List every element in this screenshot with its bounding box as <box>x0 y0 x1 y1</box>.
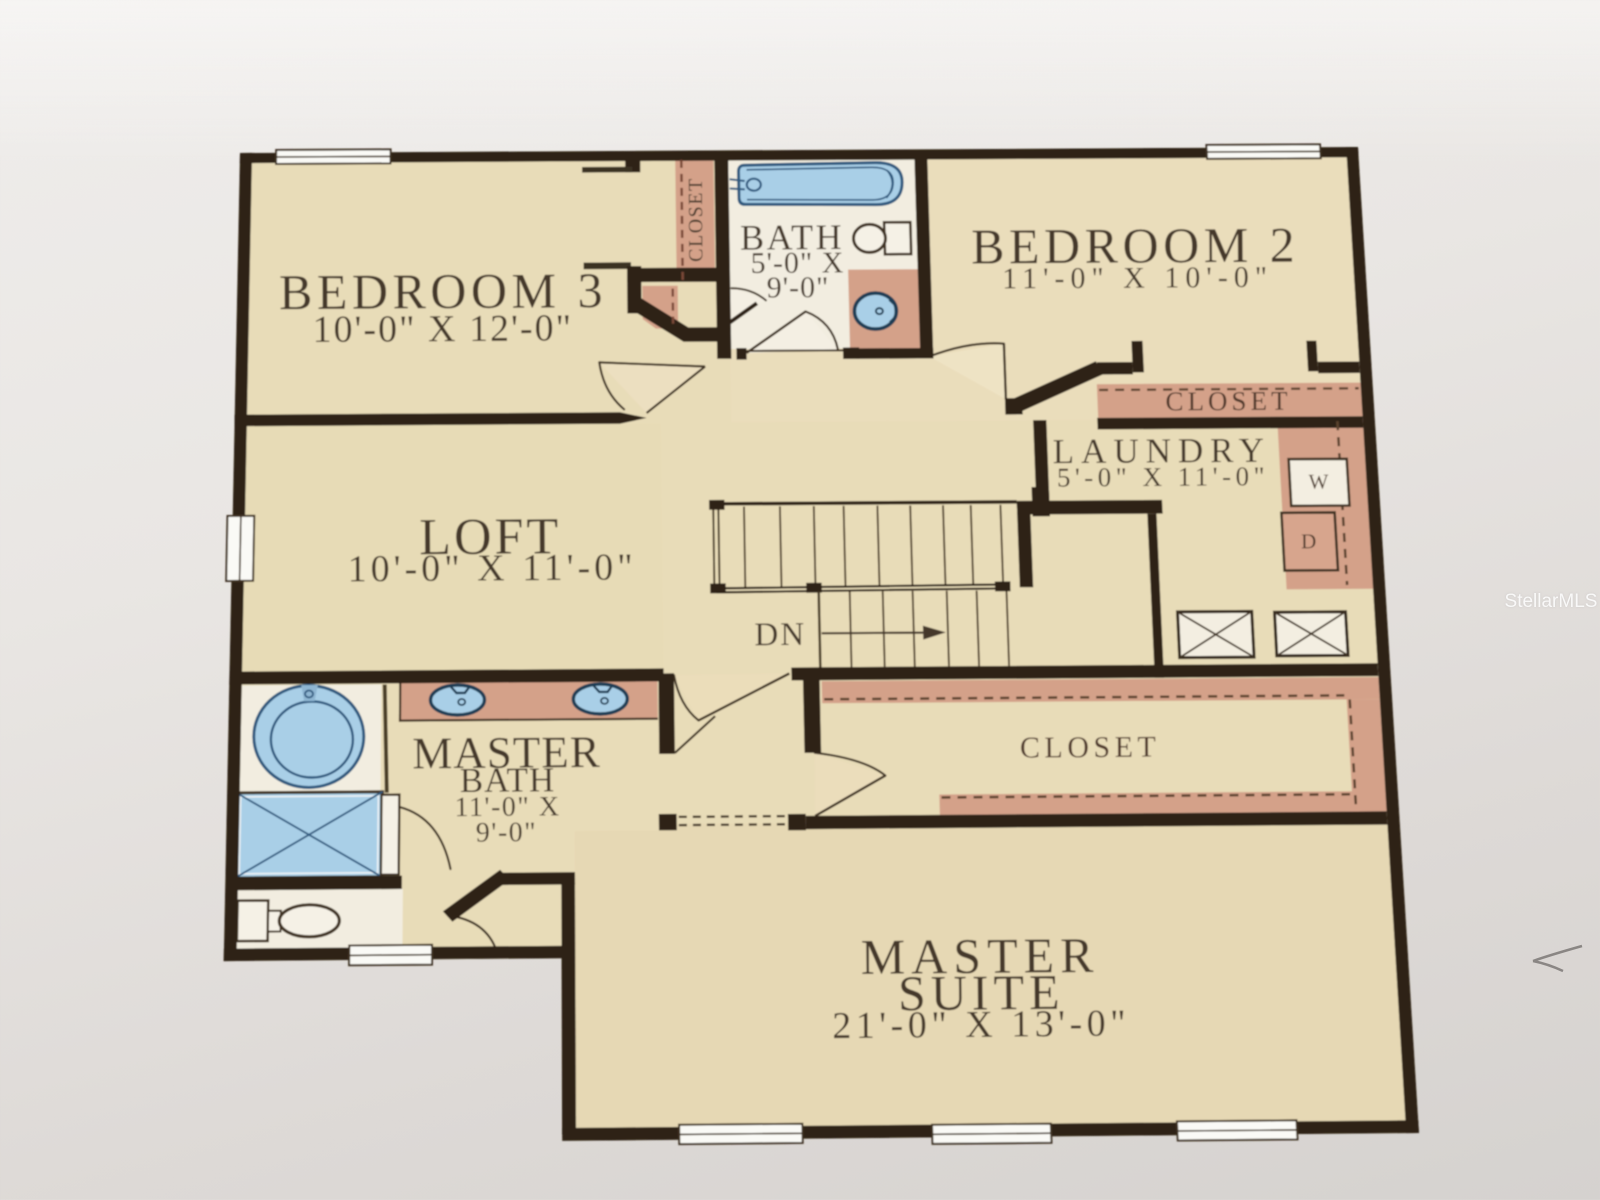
svg-text:10'-0" X 11'-0": 10'-0" X 11'-0" <box>348 546 637 590</box>
svg-text:CLOSET: CLOSET <box>685 177 707 262</box>
svg-text:StellarMLS: StellarMLS <box>1505 591 1598 612</box>
svg-text:11'-0" X 10'-0": 11'-0" X 10'-0" <box>1002 261 1273 296</box>
svg-text:CLOSET: CLOSET <box>1020 730 1161 764</box>
svg-text:10'-0" X 12'-0": 10'-0" X 12'-0" <box>312 307 573 351</box>
svg-text:21'-0" X 13'-0": 21'-0" X 13'-0" <box>832 1003 1130 1048</box>
svg-text:D: D <box>1301 529 1316 553</box>
svg-text:9'-0": 9'-0" <box>476 817 538 848</box>
svg-text:DN: DN <box>754 617 806 653</box>
svg-text:9'-0": 9'-0" <box>767 271 830 304</box>
svg-text:5'-0" X 11'-0": 5'-0" X 11'-0" <box>1057 461 1269 492</box>
svg-text:W: W <box>1309 469 1329 493</box>
svg-text:CLOSET: CLOSET <box>1165 386 1291 417</box>
